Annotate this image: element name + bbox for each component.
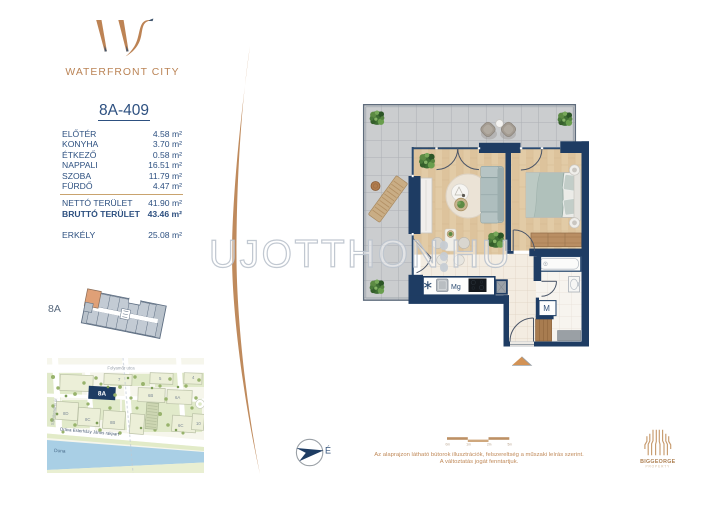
svg-text:Folyamőr utca: Folyamőr utca: [107, 365, 135, 370]
svg-text:Mg: Mg: [451, 284, 461, 291]
svg-text:6C: 6C: [178, 423, 184, 428]
svg-text:6A: 6A: [175, 395, 180, 400]
svg-text:M: M: [543, 304, 550, 313]
svg-text:PROPERTY: PROPERTY: [645, 464, 670, 468]
svg-text:6B: 6B: [148, 393, 153, 398]
svg-text:1m: 1m: [466, 443, 471, 447]
svg-text:8A: 8A: [98, 390, 107, 397]
svg-text:0m: 0m: [446, 443, 451, 447]
svg-text:5m: 5m: [508, 443, 513, 447]
svg-text:É: É: [325, 446, 331, 456]
svg-text:8C: 8C: [85, 417, 91, 422]
svg-text:8D: 8D: [63, 411, 69, 416]
svg-text:8B: 8B: [110, 420, 115, 425]
svg-text:2m: 2m: [487, 443, 492, 447]
svg-text:10: 10: [196, 421, 201, 426]
svg-text:Duna: Duna: [54, 448, 66, 455]
